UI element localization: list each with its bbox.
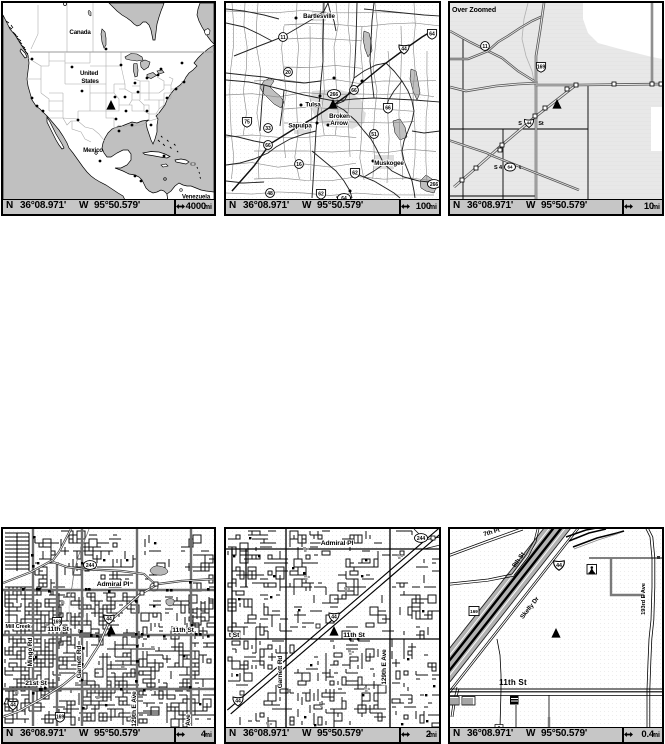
svg-text:Tulsa: Tulsa — [305, 102, 321, 109]
svg-text:44: 44 — [401, 47, 407, 53]
svg-text:266: 266 — [430, 182, 439, 188]
svg-text:66: 66 — [265, 143, 271, 149]
svg-text:United: United — [80, 70, 98, 77]
svg-text:129th E Ave: 129th E Ave — [381, 649, 388, 685]
svg-text:169: 169 — [56, 715, 65, 721]
svg-text:Admiral Pl: Admiral Pl — [321, 540, 354, 547]
svg-text:44: 44 — [526, 121, 532, 126]
svg-text:20: 20 — [285, 70, 291, 76]
svg-text:66: 66 — [351, 88, 357, 94]
svg-text:Broken: Broken — [329, 113, 350, 120]
svg-text:244: 244 — [417, 536, 426, 542]
svg-text:51: 51 — [371, 132, 377, 138]
svg-text:Ave: Ave — [185, 714, 192, 726]
svg-text:Admiral Pl: Admiral Pl — [97, 581, 130, 588]
svg-text:64: 64 — [429, 32, 435, 38]
svg-text:Garnett Rd: Garnett Rd — [277, 656, 284, 689]
svg-text:44: 44 — [10, 703, 16, 709]
svg-text:11th St: 11th St — [172, 627, 194, 634]
svg-text:266: 266 — [330, 92, 339, 98]
svg-text:21st St: 21st St — [25, 680, 47, 687]
svg-text:62: 62 — [318, 192, 324, 198]
svg-text:62: 62 — [352, 171, 358, 177]
svg-text:129th E Ave: 129th E Ave — [131, 691, 138, 727]
svg-text:44: 44 — [106, 617, 112, 623]
svg-text:193rd E Ave: 193rd E Ave — [641, 582, 647, 615]
svg-text:t: t — [519, 165, 521, 171]
svg-text:244: 244 — [86, 563, 95, 569]
svg-text:16: 16 — [296, 162, 302, 168]
svg-text:11th St: 11th St — [499, 678, 527, 687]
svg-text:Muskogee: Muskogee — [374, 160, 404, 167]
svg-text:11: 11 — [482, 44, 488, 50]
svg-text:St: St — [538, 121, 544, 127]
svg-text:Garnett Rd: Garnett Rd — [76, 646, 83, 679]
svg-text:Over Zoomed: Over Zoomed — [452, 7, 496, 14]
svg-text:64: 64 — [507, 165, 513, 170]
svg-text:11th St: 11th St — [47, 626, 69, 633]
svg-text:11: 11 — [280, 35, 286, 41]
svg-text:44: 44 — [235, 699, 241, 705]
svg-text:66: 66 — [385, 106, 391, 112]
svg-text:44: 44 — [556, 563, 562, 569]
svg-text:33: 33 — [265, 126, 271, 132]
svg-text:11th St: 11th St — [343, 632, 365, 639]
svg-text:44: 44 — [331, 615, 337, 621]
svg-text:Arrow: Arrow — [330, 120, 348, 127]
svg-text:169: 169 — [537, 65, 546, 71]
svg-text:Canada: Canada — [69, 29, 91, 36]
svg-text:Mexico: Mexico — [83, 147, 103, 154]
svg-text:Sapulpa: Sapulpa — [288, 123, 312, 130]
svg-text:75: 75 — [244, 120, 250, 126]
svg-text:169: 169 — [53, 620, 62, 626]
svg-text:S: S — [518, 121, 522, 127]
svg-text:Bartlesville: Bartlesville — [303, 13, 335, 20]
svg-text:48: 48 — [267, 191, 273, 197]
svg-text:Mill Creek: Mill Creek — [6, 624, 32, 630]
svg-text:169: 169 — [470, 609, 478, 614]
svg-text:Mingo Rd: Mingo Rd — [27, 637, 34, 666]
svg-text:States: States — [81, 78, 99, 85]
svg-text:S 4: S 4 — [494, 165, 503, 171]
svg-text:t St: t St — [229, 632, 240, 639]
